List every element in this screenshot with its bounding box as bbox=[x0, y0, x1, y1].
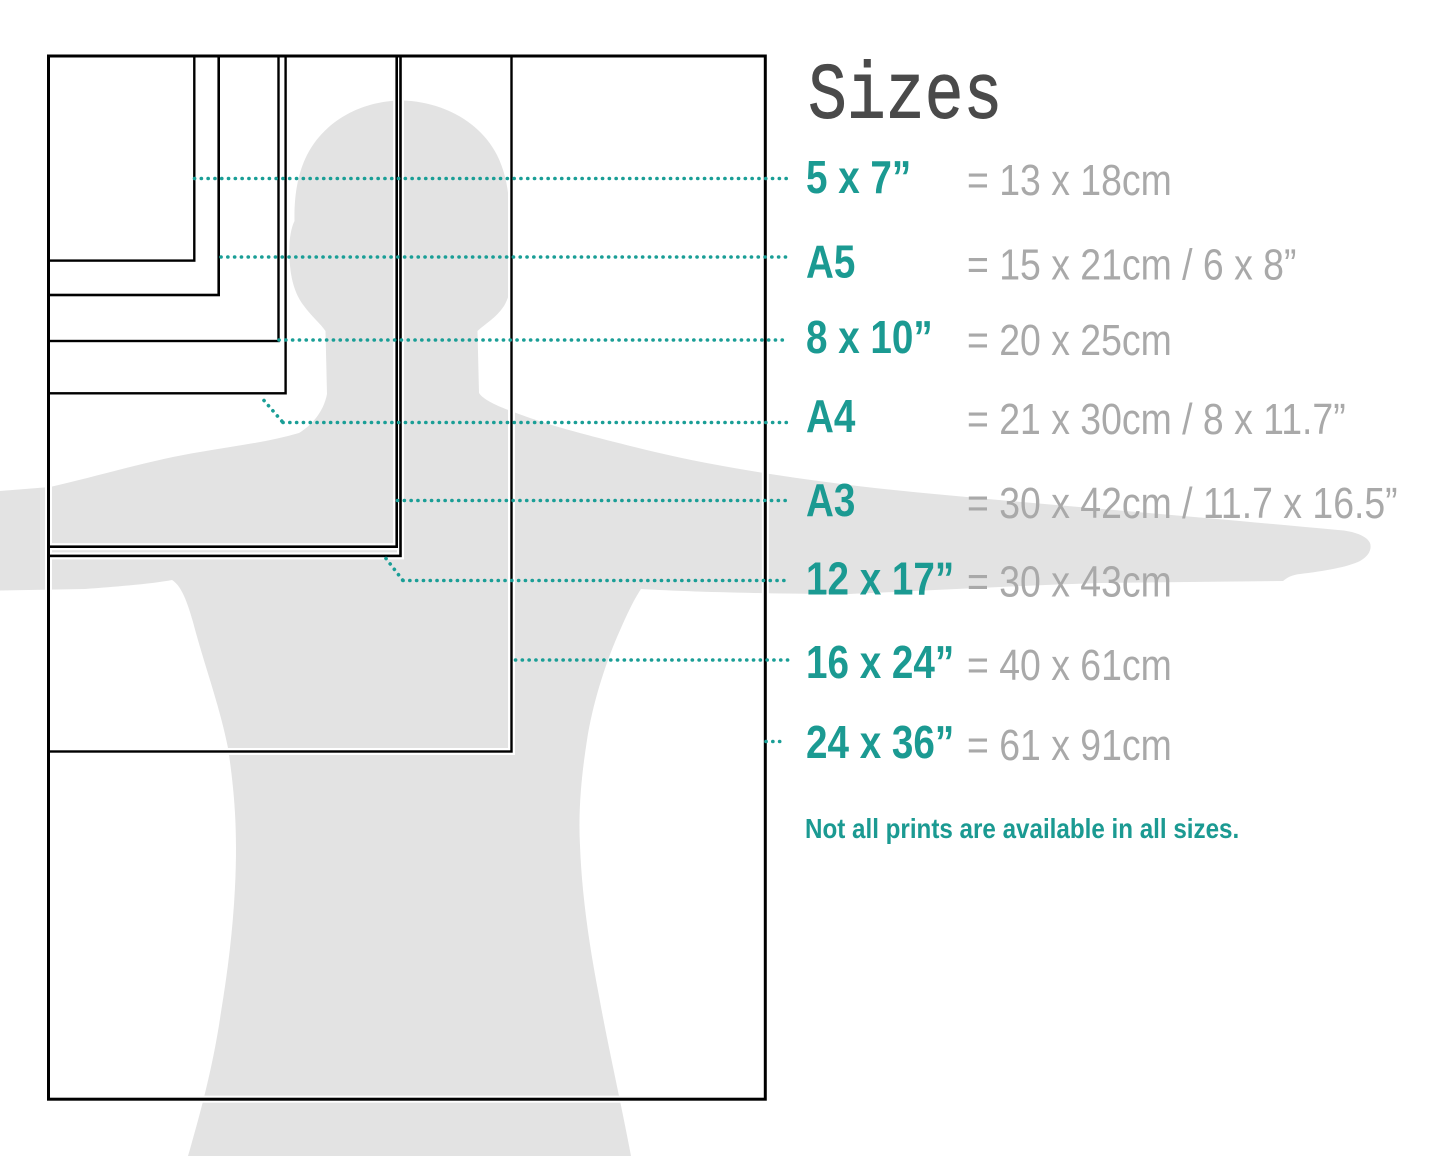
svg-text:Not all prints are available i: Not all prints are available in all size… bbox=[805, 815, 1239, 845]
svg-text:= 30 x 42cm / 11.7 x 16.5”: = 30 x 42cm / 11.7 x 16.5” bbox=[967, 478, 1398, 528]
svg-text:= 15 x 21cm / 6 x 8”: = 15 x 21cm / 6 x 8” bbox=[967, 240, 1296, 290]
svg-text:24 x 36”: 24 x 36” bbox=[806, 717, 954, 768]
svg-text:A5: A5 bbox=[806, 236, 855, 287]
svg-text:16 x 24”: 16 x 24” bbox=[806, 637, 954, 688]
svg-text:5 x 7”: 5 x 7” bbox=[806, 152, 911, 203]
svg-text:= 13 x 18cm: = 13 x 18cm bbox=[967, 155, 1172, 205]
svg-text:= 40 x 61cm: = 40 x 61cm bbox=[967, 640, 1172, 690]
svg-text:Sizes: Sizes bbox=[808, 50, 1002, 141]
svg-text:12 x 17”: 12 x 17” bbox=[806, 553, 954, 604]
svg-text:= 61 x 91cm: = 61 x 91cm bbox=[967, 720, 1172, 770]
svg-text:A3: A3 bbox=[806, 475, 855, 526]
svg-text:8 x 10”: 8 x 10” bbox=[806, 312, 933, 363]
svg-text:= 20 x 25cm: = 20 x 25cm bbox=[967, 315, 1172, 365]
svg-text:A4: A4 bbox=[806, 391, 856, 442]
svg-text:= 30 x 43cm: = 30 x 43cm bbox=[967, 557, 1172, 607]
svg-text:= 21 x 30cm / 8 x 11.7”: = 21 x 30cm / 8 x 11.7” bbox=[967, 394, 1346, 444]
